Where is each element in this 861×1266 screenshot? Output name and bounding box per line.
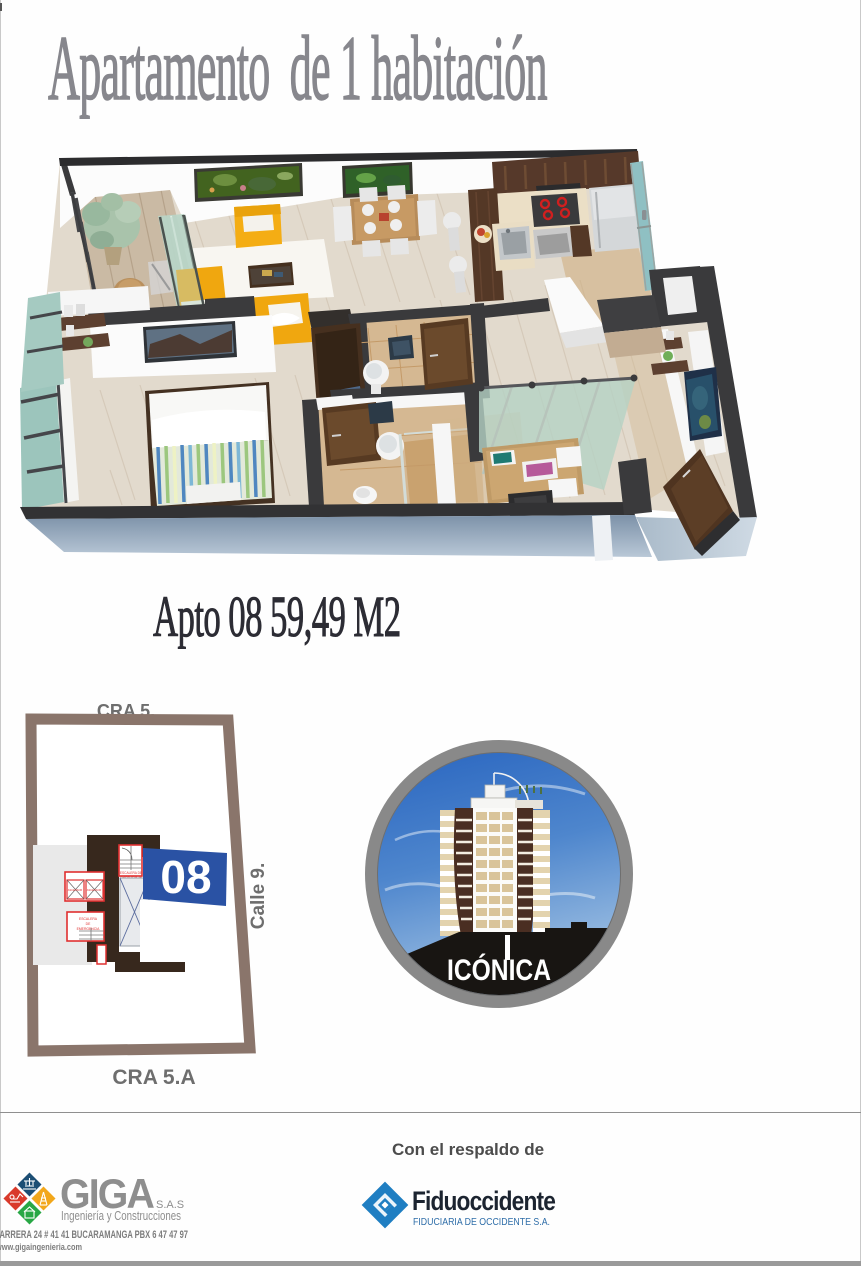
svg-text:ASCENSOR: ASCENSOR (68, 888, 83, 892)
svg-text:DE: DE (86, 922, 91, 926)
svg-text:ASCENSOR: ASCENSOR (87, 888, 102, 892)
svg-text:EMERGENCIA: EMERGENCIA (77, 927, 101, 931)
svg-text:FIDUCIARIA DE OCCIDENTE S.A.: FIDUCIARIA DE OCCIDENTE S.A. (413, 1216, 550, 1228)
svg-text:CRA 5.A: CRA 5.A (112, 1066, 195, 1089)
svg-text:ICÓNICA: ICÓNICA (447, 953, 551, 987)
svg-text:Calle 9.: Calle 9. (248, 863, 269, 930)
svg-text:ESCALERA: ESCALERA (79, 917, 98, 921)
svg-text:www.gigaingenieria.com: www.gigaingenieria.com (0, 1242, 82, 1253)
svg-text:CARRERA 24 # 41 41 BUCARAMANG: CARRERA 24 # 41 41 BUCARAMANGA PBX 6 47 … (0, 1229, 188, 1241)
svg-text:Ingeniería y Construcciones: Ingeniería y Construcciones (61, 1208, 181, 1223)
svg-text:Fiduoccidente: Fiduoccidente (412, 1186, 556, 1216)
svg-text:08: 08 (160, 851, 211, 903)
